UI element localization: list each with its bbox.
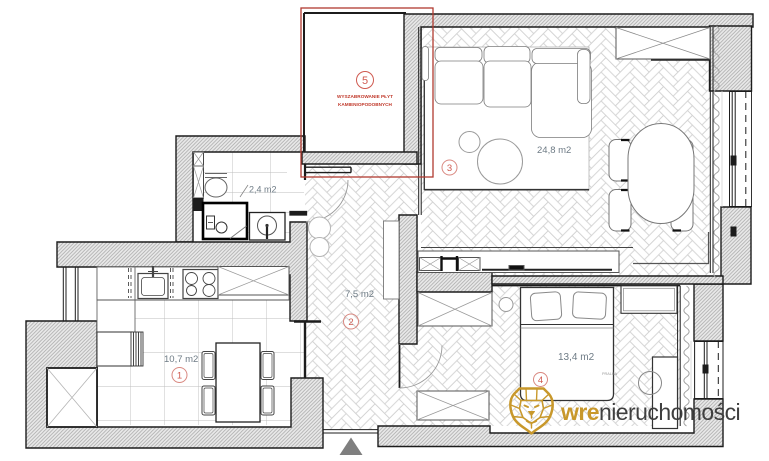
svg-text:7,5 m2: 7,5 m2 xyxy=(345,289,374,300)
svg-text:10,7 m2: 10,7 m2 xyxy=(164,354,198,365)
svg-text:4: 4 xyxy=(538,375,543,386)
svg-text:24,8 m2: 24,8 m2 xyxy=(537,145,571,156)
svg-text:5: 5 xyxy=(362,75,368,87)
svg-text:WYSZABROWANIE PŁYT: WYSZABROWANIE PŁYT xyxy=(337,94,393,99)
svg-text:13,4 m2: 13,4 m2 xyxy=(558,352,595,363)
svg-text:2: 2 xyxy=(348,317,353,328)
svg-text:KAMIENIOPODOBNYCH: KAMIENIOPODOBNYCH xyxy=(338,102,393,107)
svg-text:1: 1 xyxy=(177,370,182,381)
svg-text:PRALKA: PRALKA xyxy=(602,372,617,376)
svg-text:3: 3 xyxy=(447,163,452,174)
svg-text:2,4 m2: 2,4 m2 xyxy=(249,185,277,195)
svg-text:wrenieruchomości: wrenieruchomości xyxy=(560,399,740,425)
